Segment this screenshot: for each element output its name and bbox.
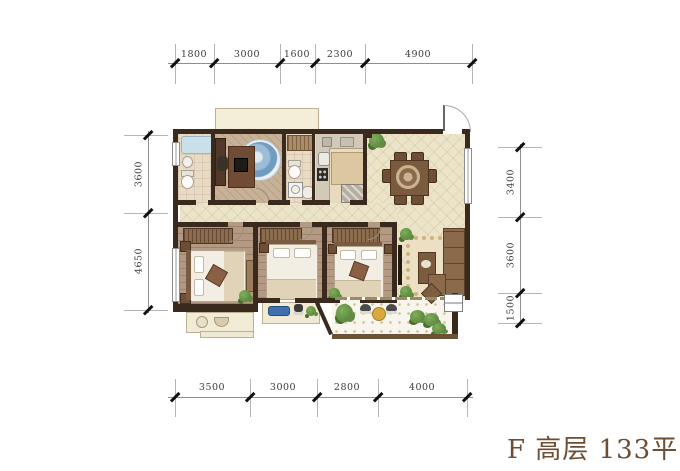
wall-bath1-study [211,134,215,203]
plant-icon [432,323,446,334]
wall-seg [253,298,280,303]
hallway [180,203,397,222]
computer-icon [234,158,248,172]
wall-kitchen-dining [363,134,367,203]
wall-seg [312,222,322,227]
table-runner-icon [396,165,420,189]
wall-bed2-bed3 [322,222,327,303]
dim-label-right-2: 3600 [506,242,517,268]
dim-label-bottom-1: 3500 [199,382,225,393]
wall-seg [302,200,330,205]
dim-label-top-2: 3000 [234,49,260,60]
patio-table-icon [372,307,386,321]
duvet-fold [267,279,316,299]
patio-chair-icon [386,304,397,314]
plant-icon [410,310,425,323]
washer-door-icon [291,185,300,194]
wall-seg [258,222,300,227]
wall-study-bath2 [282,134,286,203]
master-bay-ledge [200,331,254,338]
balcony-railing [332,334,458,339]
shower-icon [287,135,313,151]
bedroom2-bed-icon [266,244,318,300]
toilet-icon [181,175,194,189]
wall-pillar [363,129,372,138]
counter-utensil-icon [340,137,354,147]
window-dining [464,148,472,204]
dim-label-right-3: 1500 [506,295,517,321]
dim-label-top-3: 1600 [284,49,310,60]
dim-label-bottom-3: 2800 [334,382,360,393]
window-master-bedroom [172,248,180,302]
wall-bath2-kitchen [312,134,315,203]
pillow-icon [294,248,311,258]
floorplan-canvas: 1800 3000 1600 2300 4900 3500 3000 2800 … [0,0,680,471]
dim-line [148,131,149,313]
kitchen-sink-icon [318,152,330,166]
dim-label-top-1: 1800 [181,49,207,60]
dim-label-bottom-4: 4000 [409,382,435,393]
pillow-icon [194,279,204,296]
dim-line [520,144,521,326]
window-bathroom-1 [172,142,180,166]
wall-seg [327,222,368,227]
desk-chair-icon [217,156,228,171]
bedroom3-bed-icon [334,246,384,300]
toilet-icon [288,165,301,179]
patio-chair-icon [360,304,371,314]
sink-icon [182,156,193,168]
wall-seg [268,200,290,205]
balcony-sliding-door [335,297,453,300]
pillow-icon [361,250,377,260]
wall-seg [295,298,327,303]
pillow-icon [273,248,290,258]
entry-door-arc [444,105,471,132]
dim-line [168,397,473,398]
stove-icon [317,168,328,181]
headboard-icon [186,250,191,300]
headboard-icon [334,242,382,246]
pillow-icon [194,256,204,273]
dim-label-left-2: 4650 [134,248,145,274]
balcony-chair-icon [294,304,303,315]
dim-label-top-4: 2300 [327,49,353,60]
dim-label-right-1: 3400 [506,169,517,195]
plant-icon [306,306,316,316]
ac-unit-icon [444,294,463,312]
tv-icon [398,245,402,285]
pillow-icon [340,250,356,260]
master-bed-icon [190,250,246,302]
plant-icon [400,228,412,240]
wall-bed3-living [392,222,397,303]
bathtub-icon [181,136,213,154]
wall-seg [243,222,253,227]
plan-title: F 高层 133平 [507,429,678,466]
plant-icon [336,304,353,322]
laundry-sink-icon [268,306,290,316]
dim-label-left-1: 3600 [134,161,145,187]
wall-master-bottom [173,304,258,312]
wall-seg [178,222,228,227]
tray-icon [421,260,431,268]
dim-label-top-5: 4900 [405,49,431,60]
counter-utensil-icon [322,137,332,147]
plant-icon [239,290,251,302]
sofa-icon [443,228,465,296]
wall-seg [380,222,392,227]
decor-plate-icon [196,316,208,328]
wall-seg [208,200,256,205]
headboard-icon [266,240,316,244]
kitchen-island-icon [331,152,364,185]
throw-blanket-icon [349,261,370,282]
wall-master-bed2 [253,222,258,304]
wall-seg [178,200,196,205]
dim-label-bottom-2: 3000 [270,382,296,393]
nightstand-icon [259,243,269,253]
wall-seg [350,200,367,205]
